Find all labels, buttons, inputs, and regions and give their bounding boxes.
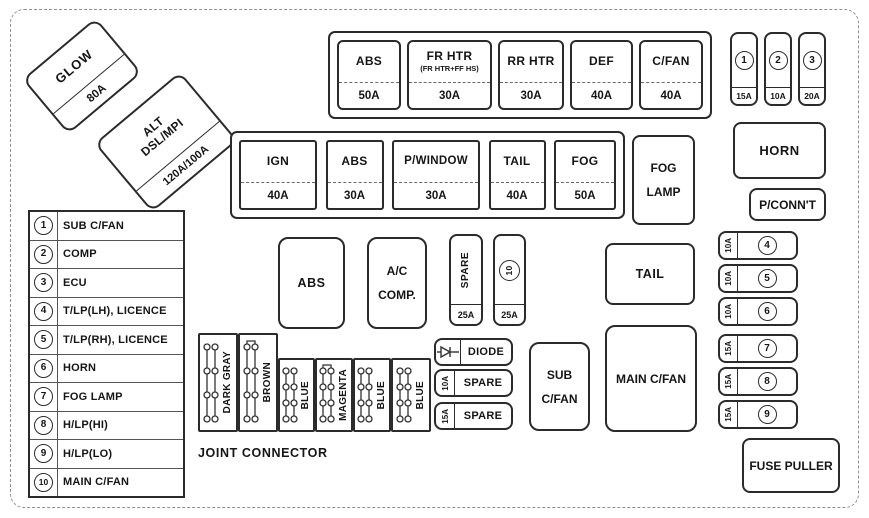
fuse-label: IGN xyxy=(241,142,315,182)
fuse-amp: 10A xyxy=(724,238,733,253)
legend-label: FOG LAMP xyxy=(58,391,123,403)
fuse-7: 15A 7 xyxy=(718,334,798,363)
legend-number: 3 xyxy=(34,273,53,292)
fuse-label: ABS xyxy=(339,42,399,82)
connector-pins-icon xyxy=(357,363,373,427)
fuse-amp: 15A xyxy=(724,407,733,422)
legend-label: MAIN C/FAN xyxy=(58,476,129,488)
connector-pins-icon xyxy=(282,363,298,427)
legend-row: 8 H/LP(HI) xyxy=(30,412,183,441)
fuse-number: 6 xyxy=(758,302,777,321)
legend-number: 4 xyxy=(34,302,53,321)
relay-fog-lamp-line1: FOG xyxy=(651,156,677,180)
joint-connector-title: JOINT CONNECTOR xyxy=(198,446,328,460)
fuse-amp: 40A xyxy=(491,182,544,208)
relay-tail: TAIL xyxy=(605,243,695,305)
fuse-label: RR HTR xyxy=(500,42,562,82)
diode-icon xyxy=(436,344,460,360)
legend-label: H/LP(LO) xyxy=(58,448,112,460)
legend-label: H/LP(HI) xyxy=(58,419,108,431)
fuse-4: 10A 4 xyxy=(718,231,798,260)
fuse-label: SPARE xyxy=(455,371,511,395)
fuse-label: C/FAN xyxy=(641,42,701,82)
relay-horn-label: HORN xyxy=(759,143,799,158)
spare-fuse-10a: 10A SPARE xyxy=(434,369,513,397)
spare-fuse-15a: 15A SPARE xyxy=(434,402,513,430)
connector-color-label: DARK GRAY xyxy=(222,351,233,413)
fuse-amp: 15A xyxy=(724,341,733,356)
legend-table: 1 SUB C/FAN 2 COMP 3 ECU 4 T/LP(LH), LIC… xyxy=(28,210,185,498)
relay-sub-cfan-line1: SUB xyxy=(547,363,572,387)
mini-fuse-1: 1 15A xyxy=(730,32,758,106)
fuse-puller-label: FUSE PULLER xyxy=(749,459,832,473)
fuse-label: TAIL xyxy=(491,142,544,182)
fuse-amp: 30A xyxy=(500,82,562,108)
fuse-box-diagram: GLOW 80A ALT DSL/MPI 120A/100A ABS 50A F… xyxy=(0,0,869,518)
relay-ac-comp-line1: A/C xyxy=(387,259,408,283)
fuse-tail-40a: TAIL 40A xyxy=(489,140,546,210)
legend-number: 7 xyxy=(34,387,53,406)
legend-row: 9 H/LP(LO) xyxy=(30,440,183,469)
fuse-label: SPARE xyxy=(460,252,472,288)
relay-ac-comp: A/C COMP. xyxy=(367,237,427,329)
fuse-number: 5 xyxy=(758,269,777,288)
legend-number: 8 xyxy=(34,416,53,435)
mini-fuse-3: 3 20A xyxy=(798,32,826,106)
fuse-amp: 30A xyxy=(394,182,478,208)
relay-tail-label: TAIL xyxy=(636,267,665,281)
fuse-label: SPARE xyxy=(455,404,511,428)
fuse-number: 2 xyxy=(769,51,788,70)
fuse-label: FOG xyxy=(556,142,614,182)
legend-label: SUB C/FAN xyxy=(58,220,124,232)
fuse-amp: 15A xyxy=(724,374,733,389)
diode-box: DIODE xyxy=(434,338,513,366)
legend-row: 5 T/LP(RH), LICENCE xyxy=(30,326,183,355)
diode-label: DIODE xyxy=(461,340,511,364)
joint-connector-dark-gray: DARK GRAY xyxy=(198,333,238,432)
joint-connector-blue-3: BLUE xyxy=(391,358,431,432)
fuse-fog-50a: FOG 50A xyxy=(554,140,616,210)
fuse-abs-30a: ABS 30A xyxy=(326,140,384,210)
legend-number: 6 xyxy=(34,359,53,378)
fuse-number: 10 xyxy=(499,260,520,281)
legend-label: T/LP(LH), LICENCE xyxy=(58,305,167,317)
fuse-number: 9 xyxy=(758,405,777,424)
fuse-rr-htr-30a: RR HTR 30A xyxy=(498,40,564,110)
connector-color-label: BLUE xyxy=(415,381,426,409)
relay-pconnt-label: P/CONN'T xyxy=(759,198,816,212)
relay-abs-label: ABS xyxy=(298,276,326,290)
connector-pins-icon xyxy=(396,363,412,427)
relay-sub-cfan: SUB C/FAN xyxy=(529,342,590,431)
connector-pins-icon xyxy=(203,339,219,427)
legend-row: 10 MAIN C/FAN xyxy=(30,469,183,497)
connector-color-label: BROWN xyxy=(262,362,273,402)
relay-fog-lamp-line2: LAMP xyxy=(647,180,681,204)
fuse-number: 8 xyxy=(758,372,777,391)
mini-fuse-group: 1 15A 2 10A 3 20A xyxy=(730,32,826,106)
joint-connector-magenta: MAGENTA xyxy=(315,358,353,432)
fuse-amp: 50A xyxy=(556,182,614,208)
fuse-label: DEF xyxy=(572,42,631,82)
connector-pins-icon xyxy=(243,339,259,427)
joint-connector-brown: BROWN xyxy=(238,333,278,432)
fuse-amp: 10A xyxy=(724,304,733,319)
mini-fuse-2: 2 10A xyxy=(764,32,792,106)
fuse-amp: 40A xyxy=(572,82,631,108)
legend-number: 1 xyxy=(34,216,53,235)
fuse-amp: 10A xyxy=(766,87,790,104)
joint-connector-blue-2: BLUE xyxy=(353,358,391,432)
relay-ac-comp-line2: COMP. xyxy=(378,283,416,307)
fuse-number: 3 xyxy=(803,51,822,70)
fuse-6: 10A 6 xyxy=(718,297,798,326)
legend-row: 4 T/LP(LH), LICENCE xyxy=(30,298,183,327)
fuse-amp: 40A xyxy=(241,182,315,208)
legend-label: HORN xyxy=(58,362,96,374)
relay-fog-lamp: FOG LAMP xyxy=(632,135,695,225)
fuse-amp: 30A xyxy=(409,82,490,108)
fuse-10-25a: 10 25A xyxy=(493,234,526,326)
fuse-number: 4 xyxy=(758,236,777,255)
legend-number: 10 xyxy=(34,473,53,492)
fuse-amp: 25A xyxy=(495,304,524,324)
legend-label: ECU xyxy=(58,277,87,289)
connector-color-label: BLUE xyxy=(376,381,387,409)
fuse-number: 1 xyxy=(735,51,754,70)
top-fuse-bank: ABS 50A FR HTR (FR HTR+FF HS) 30A RR HTR… xyxy=(328,31,712,119)
fuse-amp: 15A xyxy=(732,87,756,104)
fuse-spare-25a: SPARE 25A xyxy=(449,234,483,326)
legend-number: 9 xyxy=(34,444,53,463)
fuse-pwindow-30a: P/WINDOW 30A xyxy=(392,140,480,210)
relay-sub-cfan-line2: C/FAN xyxy=(542,387,578,411)
connector-color-label: MAGENTA xyxy=(338,369,349,421)
second-fuse-bank: IGN 40A ABS 30A P/WINDOW 30A TAIL 40A FO… xyxy=(230,131,625,219)
fuse-amp: 30A xyxy=(328,182,382,208)
fuse-9: 15A 9 xyxy=(718,400,798,429)
fuse-label: FR HTR xyxy=(427,50,473,64)
fuse-amp: 20A xyxy=(800,87,824,104)
relay-main-cfan: MAIN C/FAN xyxy=(605,325,697,432)
relay-pconnt: P/CONN'T xyxy=(749,188,826,221)
fuse-label: ABS xyxy=(328,142,382,182)
connector-color-label: BLUE xyxy=(300,381,311,409)
fuse-amp: 40A xyxy=(641,82,701,108)
fuse-8: 15A 8 xyxy=(718,367,798,396)
legend-label: COMP xyxy=(58,248,97,260)
fuse-abs-50a: ABS 50A xyxy=(337,40,401,110)
fuse-amp: 15A xyxy=(441,409,450,424)
fuse-cfan-40a: C/FAN 40A xyxy=(639,40,703,110)
legend-row: 1 SUB C/FAN xyxy=(30,212,183,241)
relay-horn: HORN xyxy=(733,122,826,179)
fuse-ign-40a: IGN 40A xyxy=(239,140,317,210)
legend-row: 2 COMP xyxy=(30,241,183,270)
fuse-5: 10A 5 xyxy=(718,264,798,293)
relay-abs: ABS xyxy=(278,237,345,329)
fuse-fr-htr-30a: FR HTR (FR HTR+FF HS) 30A xyxy=(407,40,492,110)
legend-row: 3 ECU xyxy=(30,269,183,298)
fuse-amp: 10A xyxy=(724,271,733,286)
legend-row: 7 FOG LAMP xyxy=(30,383,183,412)
fuse-puller-box: FUSE PULLER xyxy=(742,438,840,493)
legend-number: 5 xyxy=(34,330,53,349)
fuse-amp: 10A xyxy=(441,376,450,391)
relay-main-cfan-label: MAIN C/FAN xyxy=(616,372,686,386)
fuse-number: 7 xyxy=(758,339,777,358)
legend-number: 2 xyxy=(34,245,53,264)
legend-label: T/LP(RH), LICENCE xyxy=(58,334,168,346)
fuse-sublabel: (FR HTR+FF HS) xyxy=(420,65,479,74)
joint-connector-blue-1: BLUE xyxy=(278,358,315,432)
fuse-def-40a: DEF 40A xyxy=(570,40,633,110)
fuse-amp: 50A xyxy=(339,82,399,108)
fuse-amp: 25A xyxy=(451,304,481,324)
legend-row: 6 HORN xyxy=(30,355,183,384)
connector-pins-icon xyxy=(319,363,335,427)
fuse-label: P/WINDOW xyxy=(394,142,478,182)
